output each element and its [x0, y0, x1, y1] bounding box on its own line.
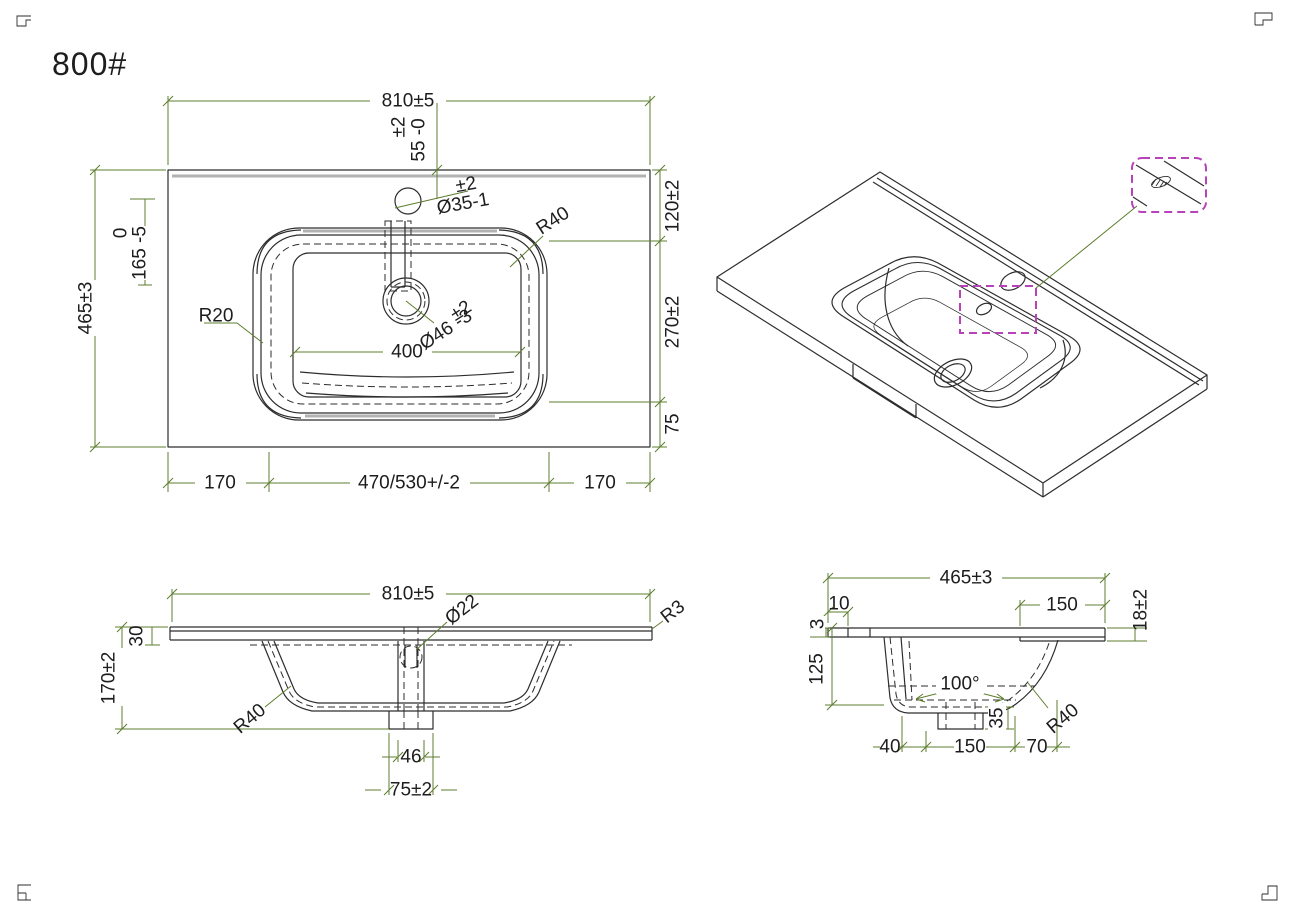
side-section-view: 465±3 10 3 150 18±2 125 100° 35 R40 40 1… — [807, 568, 1152, 758]
detail-callout-edges — [1133, 161, 1204, 206]
dim-rim-offset: 165 -5 — [130, 226, 151, 280]
dim-bottom-back: 40 — [879, 737, 900, 758]
dim-right-bottom: 75 — [663, 413, 684, 434]
dim-right-top: 120±2 — [663, 180, 684, 233]
overflow-pipe-hidden — [400, 646, 422, 668]
dim-basin-width: 400 — [391, 342, 423, 363]
side-dimension-lines — [810, 573, 1147, 752]
isometric-view — [717, 158, 1207, 497]
label-front-r40: R40 — [230, 700, 270, 738]
dim-rim-offset-tolerance: 0 — [111, 228, 132, 239]
drawing-title: 800# — [52, 46, 127, 82]
dim-front-edge-thickness: 18±2 — [1131, 589, 1152, 631]
corner-marker-top-right — [1255, 13, 1272, 25]
front-dimension-lines — [115, 589, 663, 795]
plan-hidden-details — [302, 383, 512, 387]
iso-drain-inner — [938, 360, 968, 386]
iso-slab — [717, 172, 1207, 497]
corner-markers — [17, 13, 1277, 900]
dim-drain-inner-width: 46 — [400, 747, 421, 768]
corner-marker-bottom-left — [18, 885, 31, 900]
basin-bottom-outline — [293, 253, 521, 397]
dim-boss-height: 35 — [987, 707, 1008, 728]
dim-bottom-left: 170 — [204, 473, 236, 494]
dim-bowl-depth: 125 — [807, 653, 828, 685]
front-section-view: 810±5 Ø22 R3 30 170±2 R40 46 75±2 — [99, 584, 690, 801]
label-plan-r40: R40 — [533, 203, 574, 240]
iso-faucet-hole — [998, 268, 1028, 294]
dim-faucet-hole-diameter: Ø35-1 — [435, 189, 491, 219]
basin-rim-inner — [261, 235, 539, 413]
iso-basin-contour-2 — [857, 271, 1055, 391]
dim-right-middle: 270±2 — [663, 296, 684, 349]
dim-rim-thickness: 30 — [127, 625, 148, 646]
label-edge-radius-r3: R3 — [657, 596, 689, 628]
dim-side-depth: 465±3 — [940, 568, 993, 589]
dim-back-overhang: 10 — [828, 594, 849, 615]
dim-front-width: 810±5 — [382, 584, 435, 605]
dim-faucet-offset: 55 -0 — [409, 118, 430, 161]
cad-drawing: 800# 810±5 ±2 55 -0 ±2 Ø35-1 R40 R20 ±2 … — [0, 0, 1291, 912]
iso-basin-bottom — [874, 298, 1028, 391]
dim-overflow-pipe-diameter: Ø22 — [441, 591, 482, 630]
corner-marker-top-left — [17, 16, 31, 26]
plan-gray-accents — [172, 176, 646, 416]
label-plan-r20: R20 — [199, 306, 234, 327]
dim-plan-depth: 465±3 — [76, 282, 97, 335]
label-side-r40: R40 — [1043, 700, 1083, 738]
dim-bottom-center: 470/530+/-2 — [358, 473, 460, 494]
dim-plan-width: 810±5 — [382, 91, 435, 112]
dim-drain-diameter: Ø46 -3 — [416, 305, 476, 354]
plan-dimension-lines — [90, 96, 667, 492]
dim-bottom-front: 70 — [1026, 737, 1047, 758]
dim-edge-thickness: 3 — [808, 619, 829, 630]
dim-bottom-center: 150 — [954, 737, 986, 758]
basin-hidden-edge — [271, 244, 529, 404]
countertop-outline — [168, 170, 650, 447]
corner-marker-bottom-right — [1262, 886, 1277, 900]
dim-drain-outer-width: 75±2 — [390, 780, 432, 801]
dim-faucet-offset-tolerance: ±2 — [389, 117, 410, 138]
detail-leader-line — [1036, 206, 1137, 288]
front-hidden-geometry — [250, 627, 572, 729]
dim-bottom-right: 170 — [584, 473, 616, 494]
dim-front-flat: 150 — [1046, 595, 1078, 616]
plan-view: 810±5 ±2 55 -0 ±2 Ø35-1 R40 R20 ±2 Ø46 -… — [76, 91, 684, 494]
dim-front-height: 170±2 — [99, 652, 120, 705]
dim-wall-angle: 100° — [940, 674, 979, 695]
faucet-hole — [395, 188, 421, 214]
detail-overflow-slot — [1150, 174, 1172, 190]
